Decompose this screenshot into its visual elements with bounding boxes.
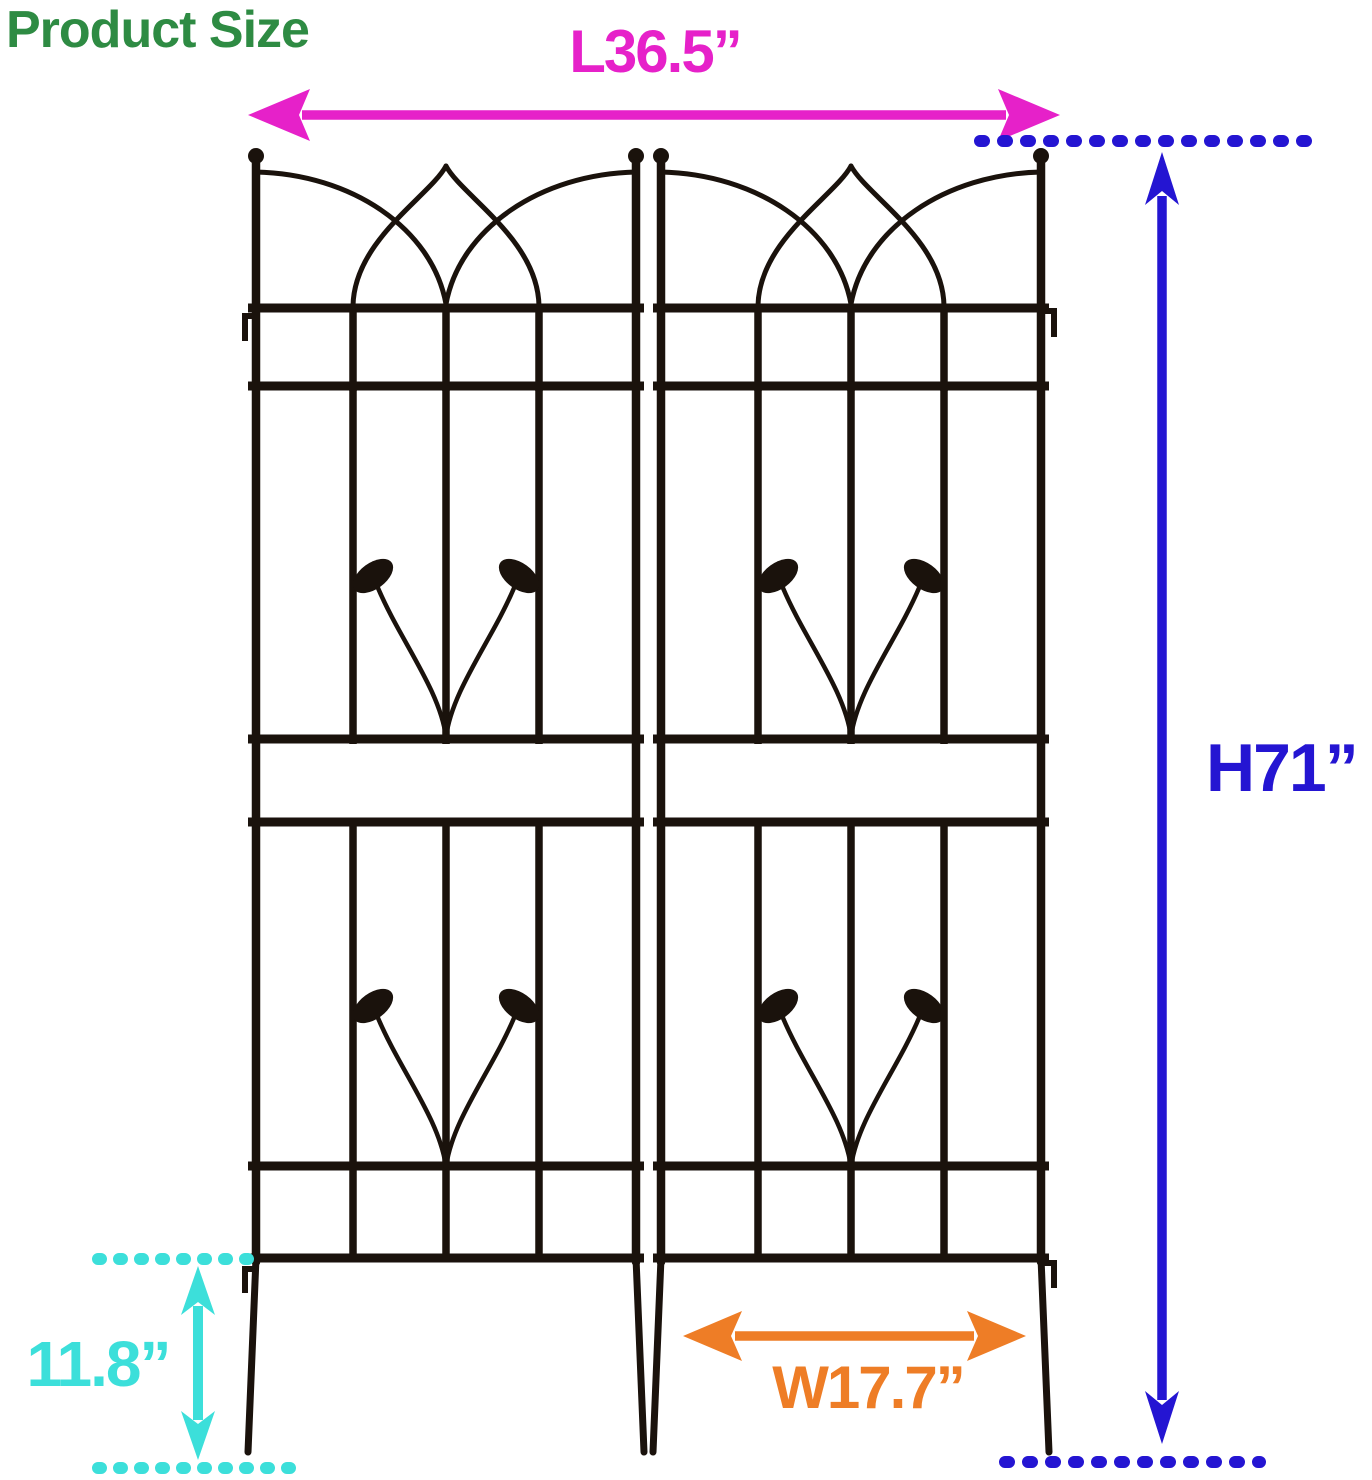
diagram-svg bbox=[0, 0, 1372, 1480]
width-dimension-label: W17.7” bbox=[718, 1358, 1018, 1418]
page-title: Product Size bbox=[6, 4, 309, 56]
arrowhead-right-icon bbox=[998, 89, 1060, 141]
product-size-diagram: Product Size L36.5” H71” 11.8” W17.7” bbox=[0, 0, 1372, 1480]
length-dimension-label: L36.5” bbox=[505, 22, 805, 82]
length-arrow bbox=[248, 89, 1060, 141]
trellis-illustration bbox=[245, 148, 1054, 1452]
arrowhead-left-icon bbox=[683, 1311, 742, 1361]
arrowhead-left-icon bbox=[248, 89, 310, 141]
trellis-panel-right bbox=[653, 148, 1049, 1452]
trellis-panel-left bbox=[248, 148, 644, 1452]
arrowhead-right-icon bbox=[967, 1311, 1026, 1361]
mounting-hooks bbox=[245, 311, 1054, 1293]
height-dimension-label: H71” bbox=[1206, 734, 1357, 802]
stake-dimension-label: 11.8” bbox=[0, 1332, 196, 1396]
